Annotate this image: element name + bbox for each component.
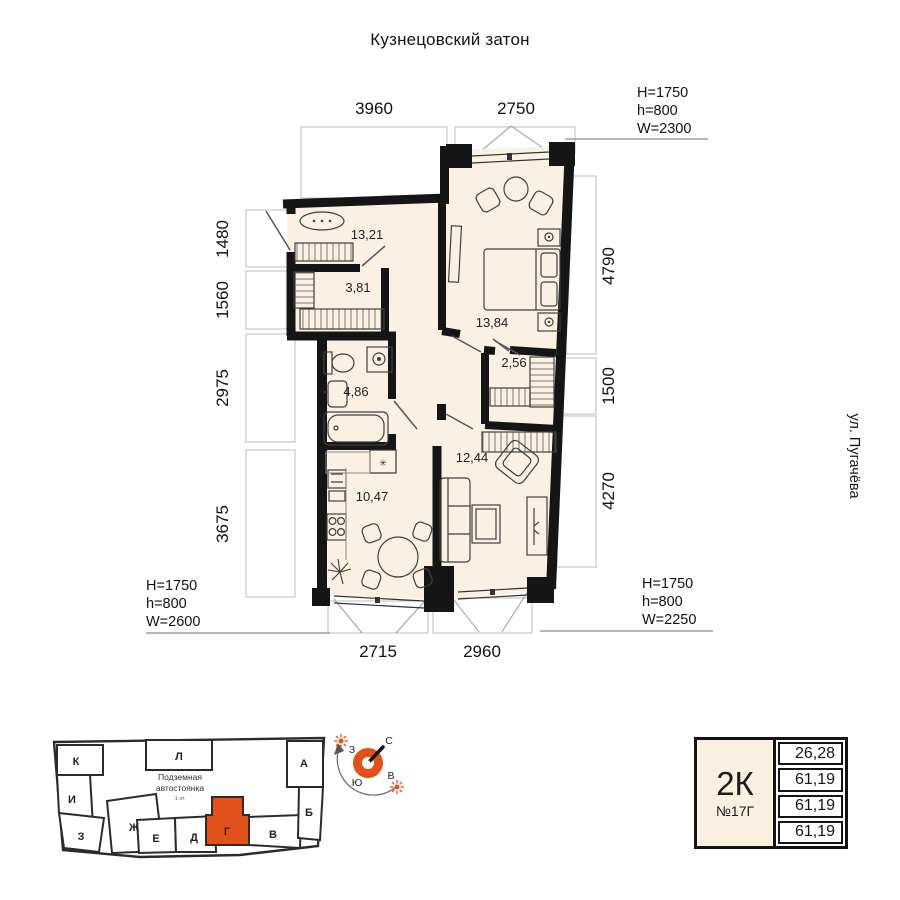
- dim-left-4: 3675: [213, 505, 232, 543]
- window-spec-bottom-left: H=1750 h=800 W=2600: [146, 578, 330, 633]
- svg-text:H=1750: H=1750: [637, 85, 688, 101]
- svg-text:H=1750: H=1750: [642, 576, 693, 592]
- room-area-closet: 2,56: [501, 355, 526, 370]
- room-area-wardrobe: 3,81: [345, 280, 370, 295]
- area-value: 61,19: [778, 821, 843, 844]
- section-label: В: [269, 829, 277, 841]
- section-label: Е: [152, 833, 159, 845]
- svg-text:H=1750: H=1750: [146, 578, 197, 594]
- wardrobe-shelf-bottom: [300, 309, 384, 329]
- vent-symbol: ✳: [379, 458, 387, 468]
- svg-text:h=800: h=800: [637, 103, 678, 119]
- room-area-bathroom: 4,86: [343, 384, 368, 399]
- area-value: 61,19: [778, 795, 843, 818]
- dim-top-2: 2750: [497, 99, 535, 118]
- dim-left-1: 1480: [213, 220, 232, 258]
- dim-top-1: 3960: [355, 99, 393, 118]
- apartment-number: №17Г: [716, 803, 754, 819]
- dim-right-1: 4790: [599, 247, 618, 285]
- apartment-areas: 26,28 61,19 61,19 61,19: [776, 740, 845, 846]
- room-area-kitchen: 10,47: [356, 489, 389, 504]
- parking-sublabel: 1 эт.: [175, 796, 186, 802]
- section-K[interactable]: [57, 745, 103, 775]
- wardrobe-shelf-left: [294, 272, 314, 308]
- svg-text:h=800: h=800: [146, 596, 187, 612]
- section-label: А: [300, 758, 308, 770]
- section-label: И: [68, 794, 76, 806]
- hallway-shoe-rack: [295, 243, 353, 261]
- closet-shelves-bottom: [490, 388, 530, 406]
- compass-north: С: [385, 735, 393, 747]
- page-title: Кузнецовский затон: [0, 30, 900, 50]
- street-label: ул. Пугачёва: [846, 413, 862, 499]
- closet-shelves-right: [530, 357, 554, 407]
- parking-label-line1: Подземная: [158, 772, 202, 782]
- area-value: 61,19: [778, 768, 843, 791]
- dim-right-3: 4270: [599, 472, 618, 510]
- section-label: Ж: [128, 822, 139, 834]
- section-label: К: [73, 756, 80, 768]
- section-label: З: [78, 831, 85, 843]
- dim-bottom-1: 2715: [359, 642, 397, 661]
- apartment-type: 2К: [716, 767, 754, 800]
- section-label: Б: [305, 807, 313, 819]
- parking-label-line2: автостоянка: [156, 783, 205, 793]
- window-spec-top-right: H=1750 h=800 W=2300: [565, 85, 708, 139]
- arc-arrowhead: [334, 743, 344, 755]
- building-footprint: К И З Ж Л Е Д Г В А Б Подземная автостоя…: [54, 738, 324, 857]
- section-label-highlighted: Г: [224, 826, 231, 838]
- section-label: Д: [190, 832, 198, 844]
- apartment-type-cell: 2К №17Г: [697, 740, 776, 846]
- svg-text:W=2600: W=2600: [146, 614, 200, 630]
- dim-right-2: 1500: [599, 367, 618, 405]
- dim-bottom-2: 2960: [463, 642, 501, 661]
- sun-icon: [334, 734, 348, 748]
- area-value: 26,28: [778, 742, 843, 765]
- svg-text:W=2250: W=2250: [642, 612, 696, 628]
- svg-text:W=2300: W=2300: [637, 121, 691, 137]
- compass-east: В: [387, 770, 394, 782]
- room-area-bedroom: 13,84: [476, 315, 509, 330]
- window-spec-bottom-right: H=1750 h=800 W=2250: [540, 576, 713, 631]
- compass: С З Ю В: [334, 734, 404, 795]
- compass-west: З: [349, 744, 355, 756]
- compass-south: Ю: [352, 777, 363, 789]
- dim-left-2: 1560: [213, 281, 232, 319]
- sun-icon: [390, 780, 404, 794]
- room-area-hallway: 13,21: [351, 227, 384, 242]
- room-area-living: 12,44: [456, 450, 489, 465]
- dim-left-3: 2975: [213, 369, 232, 407]
- section-label: Л: [175, 751, 183, 763]
- svg-text:h=800: h=800: [642, 594, 683, 610]
- apartment-info-card[interactable]: 2К №17Г 26,28 61,19 61,19 61,19: [694, 737, 848, 849]
